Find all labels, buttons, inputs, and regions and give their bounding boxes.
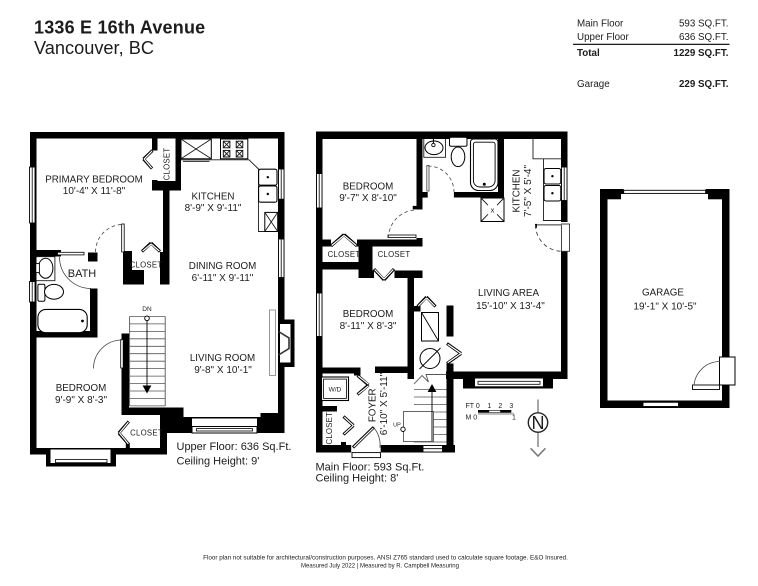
svg-text:636 SQ.FT.: 636 SQ.FT. [679,32,729,43]
svg-text:10'-4" X 11'-8": 10'-4" X 11'-8" [63,186,126,197]
svg-text:CLOSET: CLOSET [328,250,361,259]
svg-text:CLOSET: CLOSET [162,148,171,181]
svg-text:DINING ROOM: DINING ROOM [189,261,257,272]
svg-text:FOYER: FOYER [368,388,379,422]
svg-text:Upper Floor: Upper Floor [577,32,629,43]
svg-text:15'-10" X 13'-4": 15'-10" X 13'-4" [476,301,545,312]
svg-text:CLOSET: CLOSET [130,428,163,437]
svg-text:GARAGE: GARAGE [642,288,684,299]
svg-text:229 SQ.FT.: 229 SQ.FT. [679,79,729,90]
svg-text:KITCHEN: KITCHEN [191,192,234,203]
svg-text:19'-1" X 10'-5": 19'-1" X 10'-5" [633,302,697,313]
svg-text:1336 E 16th Avenue: 1336 E 16th Avenue [34,18,205,38]
svg-text:Ceiling Height: 8': Ceiling Height: 8' [316,473,399,485]
svg-text:CLOSET: CLOSET [378,250,411,259]
svg-text:Floor plan not suitable for ar: Floor plan not suitable for architectura… [203,555,568,562]
svg-text:Upper Floor: 636 Sq.Ft.: Upper Floor: 636 Sq.Ft. [177,441,292,453]
svg-text:BEDROOM: BEDROOM [343,182,394,193]
svg-text:BEDROOM: BEDROOM [343,309,394,320]
svg-text:PRIMARY BEDROOM: PRIMARY BEDROOM [45,175,143,186]
svg-text:6'-10" X 5'-11": 6'-10" X 5'-11" [379,372,390,435]
svg-text:N: N [532,413,545,433]
svg-text:593 SQ.FT.: 593 SQ.FT. [679,18,729,29]
svg-text:Ceiling Height: 9': Ceiling Height: 9' [177,456,260,468]
svg-text:9'-9" X 8'-3": 9'-9" X 8'-3" [55,395,108,406]
svg-text:FT 0: FT 0 [466,403,480,410]
svg-text:Measured July 2022 | Measured: Measured July 2022 | Measured by R. Camp… [301,564,459,570]
svg-text:Vancouver, BC: Vancouver, BC [34,38,154,58]
svg-text:KITCHEN: KITCHEN [511,169,522,212]
svg-text:1: 1 [487,403,491,410]
svg-text:8'-11" X 8'-3": 8'-11" X 8'-3" [340,321,397,332]
svg-text:9'-7" X 8'-10": 9'-7" X 8'-10" [339,193,397,204]
svg-text:9'-8" X 10'-1": 9'-8" X 10'-1" [194,365,252,376]
svg-text:2: 2 [498,403,502,410]
svg-text:1229 SQ.FT.: 1229 SQ.FT. [674,48,729,59]
svg-text:7'-5" X 5'-4": 7'-5" X 5'-4" [523,165,534,218]
svg-text:Total: Total [577,48,600,59]
svg-text:W/D: W/D [329,386,342,393]
svg-text:CLOSET: CLOSET [130,260,163,269]
svg-text:BEDROOM: BEDROOM [56,383,107,394]
svg-text:Garage: Garage [577,79,610,90]
svg-text:6'-11" X 9'-11": 6'-11" X 9'-11" [192,273,254,284]
svg-text:x: x [491,206,495,215]
svg-text:CLOSET: CLOSET [325,412,334,445]
svg-text:LIVING ROOM: LIVING ROOM [190,353,255,364]
svg-text:1: 1 [512,415,516,422]
svg-text:UP: UP [393,422,401,428]
svg-text:LIVING AREA: LIVING AREA [478,288,539,299]
svg-text:M 0: M 0 [466,415,478,422]
svg-text:8'-9" X 9'-11": 8'-9" X 9'-11" [185,203,242,214]
svg-text:3: 3 [509,403,513,410]
svg-text:DN: DN [142,306,152,313]
svg-text:Main Floor: Main Floor [577,18,624,29]
svg-text:BATH: BATH [68,268,97,280]
